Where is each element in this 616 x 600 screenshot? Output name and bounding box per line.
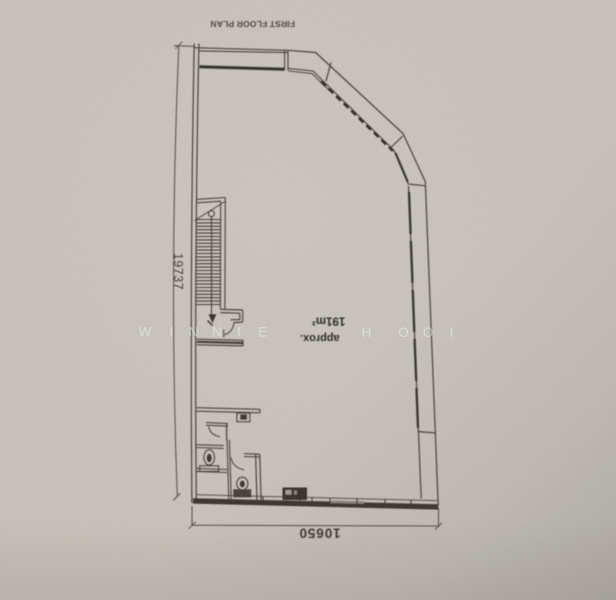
svg-text:I: I	[170, 325, 174, 340]
svg-text:W: W	[139, 325, 152, 340]
svg-text:N: N	[189, 325, 199, 340]
svg-text:H: H	[362, 325, 372, 340]
svg-text:O: O	[398, 325, 409, 340]
svg-text:E: E	[258, 325, 267, 340]
svg-text:I: I	[450, 325, 454, 340]
svg-text:N: N	[212, 325, 222, 340]
svg-text:I: I	[237, 325, 241, 340]
svg-text:O: O	[423, 325, 434, 340]
